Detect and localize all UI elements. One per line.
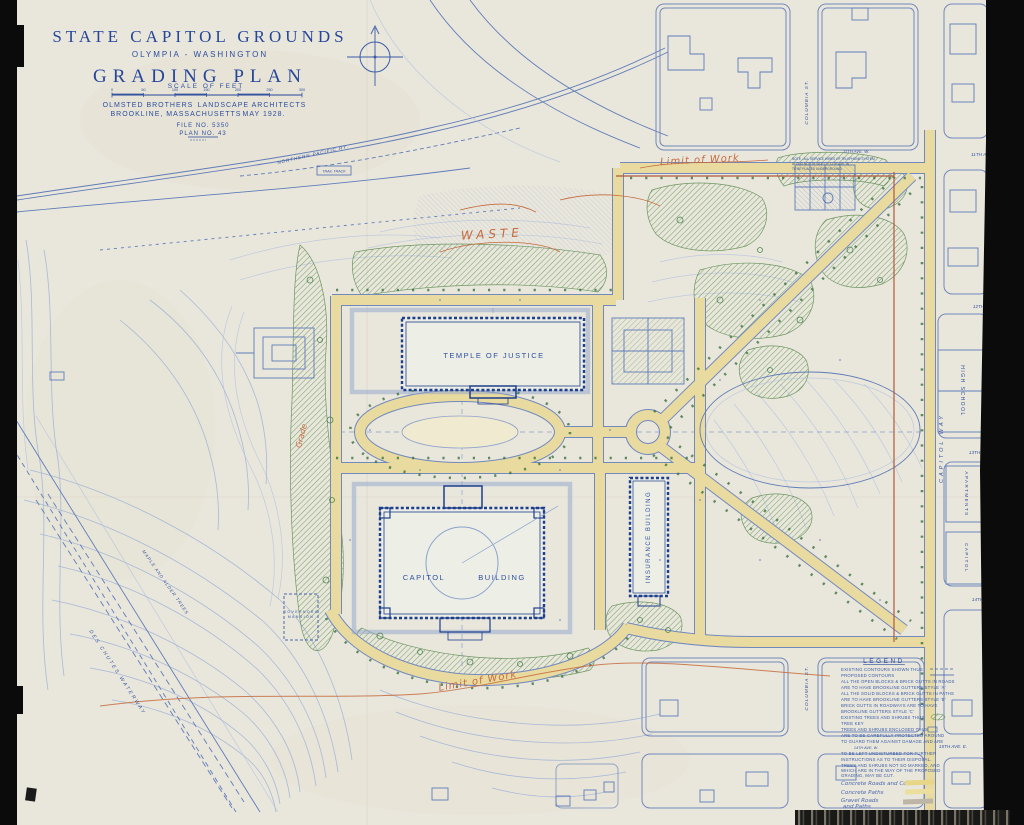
capitol-block-label: CAPITOL xyxy=(964,543,969,573)
high-school-label: HIGH SCHOOL xyxy=(959,365,965,417)
key-concrete-paths: Concrete Paths xyxy=(841,790,884,796)
key-gravel-paths: and Paths xyxy=(843,804,871,810)
columbia-st-bottom-label: COLUMBIA ST. xyxy=(804,665,810,710)
ave-15e-label: 15TH AVE. E. xyxy=(939,744,967,749)
legend-title: LEGEND xyxy=(863,658,905,665)
scale-tick: 150 xyxy=(203,88,209,92)
legend-line: PROPOSED CONTOURS xyxy=(841,673,894,678)
capitol-way-label: CAPITOL WAY xyxy=(939,413,945,483)
swatch-concrete-roads xyxy=(905,779,935,785)
insurance-building-label: INSURANCE BUILDING xyxy=(646,491,652,583)
temple-of-justice-label: TEMPLE OF JUSTICE xyxy=(443,351,544,360)
legend-line: TO BE LEFT UNDISTURBED FOR FURTHER xyxy=(841,751,936,756)
scale-tick: 100 xyxy=(172,88,178,92)
firm-role: LANDSCAPE ARCHITECTS xyxy=(198,102,307,109)
tree-symbol xyxy=(931,714,945,720)
scanned-grading-plan: TEMPLE OF JUSTICE CAPITOL BUILDING INSUR… xyxy=(0,0,1024,825)
plan-subtitle: OLYMPIA - WASHINGTON xyxy=(132,50,268,59)
governors-mansion-label-2: MANSION xyxy=(288,615,314,619)
legend-line: BRICK GUTTS IN ROADWAYS ARE TO HAVE xyxy=(841,703,938,708)
firm-city: BROOKLINE, MASSACHUSETTS xyxy=(111,111,242,118)
scale-tick: 200 xyxy=(235,88,241,92)
northeast-garden xyxy=(612,318,684,384)
swatch-gravel xyxy=(903,798,933,804)
scale-tick: 250 xyxy=(266,88,272,92)
columbia-st-top-label: COLUMBIA ST. xyxy=(804,79,810,124)
note-line-3: TO BE PLACED UNDERGROUND. xyxy=(792,167,843,171)
legend-line: TREES AND SHRUBS ENCLOSED THUS xyxy=(841,727,928,732)
legend-line: TO GUARD THEM AGAINST DAMAGE AND ARE xyxy=(841,739,943,744)
scale-tick: 0 xyxy=(111,88,113,92)
legend-line: GRADING, MAY BE CUT. xyxy=(841,773,894,778)
plan-date: MAY 1928. xyxy=(243,111,286,118)
sunken-garden xyxy=(795,165,855,210)
note-line-2: ALONG NORTH SIDE OF 11TH AVE. W. xyxy=(792,162,850,166)
legend-line: ARE TO BE CAREFULLY PROTECTED AROUND xyxy=(841,733,944,738)
legend-line: INSTRUCTIONS AS TO THEIR DISPOSAL. xyxy=(841,757,932,762)
legend-line: ALL THE OPEN BLOCKS & BRICK GUTTS IN ROA… xyxy=(841,679,955,684)
legend-line: ALL THE SOLID BLOCKS & BRICK GUTTS IN PA… xyxy=(841,691,954,696)
legend-line: TREE KEY xyxy=(841,721,864,726)
key-concrete-roads: Concrete Roads and Curbs xyxy=(841,781,916,787)
note-line-1: NOTE - ALL SERVICE WIRES OF TELEPHONE SY… xyxy=(792,157,875,161)
file-number: FILE NO. 5350 xyxy=(176,123,229,129)
ave-11w-label: 11TH AVE. W. xyxy=(843,149,869,154)
legend-line: BROOKLINE GUTTERS STYLE 'C' xyxy=(841,709,914,714)
ave-14w-label: 14TH AVE. W. xyxy=(854,746,878,750)
legend-line: EXISTING CONTOURS SHOWN THUS xyxy=(841,667,923,672)
legend-line: ARE TO HAVE BROOKLINE GUTTERS STYLE 'B' xyxy=(841,697,946,702)
trail-track-label: TRAIL TRACK xyxy=(322,170,346,174)
plan-number: PLAN NO. 43 xyxy=(179,131,226,137)
capitol-label-left: CAPITOL xyxy=(403,573,445,582)
capitol-label-right: BUILDING xyxy=(478,573,525,582)
swatch-concrete-paths xyxy=(905,788,935,794)
apartments-label: APARTMENTS xyxy=(964,471,969,516)
firm-name: OLMSTED BROTHERS xyxy=(103,102,194,109)
plan-drawing: TEMPLE OF JUSTICE CAPITOL BUILDING INSUR… xyxy=(0,0,1024,825)
legend-line: EXISTING TREES AND SHRUBS THUS xyxy=(841,715,924,720)
scale-tick: 300 xyxy=(299,88,305,92)
legend-line: ARE TO HAVE BROOKLINE GUTTERS STYLE 'A' xyxy=(841,685,946,690)
plan-title: STATE CAPITOL GROUNDS xyxy=(52,27,347,46)
governors-mansion-label-1: GOVERNORS xyxy=(283,610,319,614)
film-edge-barcode xyxy=(795,810,1010,825)
scale-tick: 50 xyxy=(141,88,145,92)
